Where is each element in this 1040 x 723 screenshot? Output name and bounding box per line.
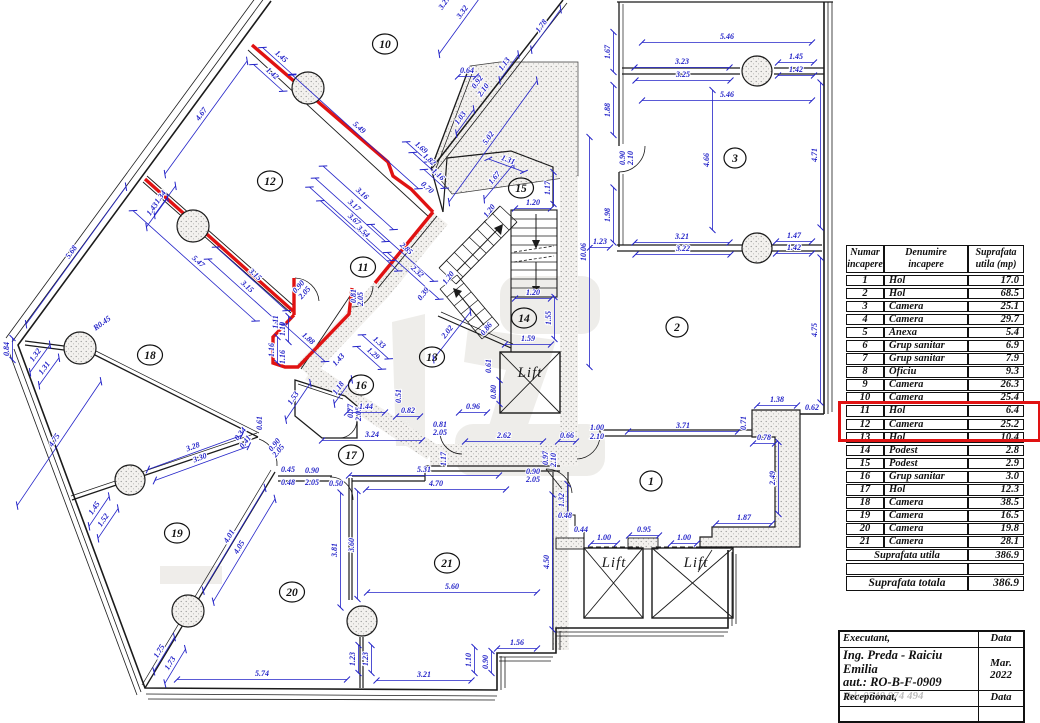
table-row-1: 1Hol17.0 (846, 275, 1024, 287)
svg-text:2.10: 2.10 (626, 151, 635, 166)
dimension-label: 3.81 (330, 490, 344, 611)
svg-text:4.71: 4.71 (810, 148, 819, 163)
svg-text:3.71: 3.71 (675, 421, 690, 430)
dimension-label: 1.75 (143, 629, 178, 675)
table-cell: 16.5 (968, 510, 1024, 522)
table-row-7: 7Grup sanitar7.9 (846, 353, 1024, 365)
svg-text:3: 3 (731, 153, 738, 165)
svg-text:1.17: 1.17 (543, 180, 552, 195)
svg-text:0.66: 0.66 (560, 431, 574, 440)
dimension-label: 1.88 (603, 82, 617, 138)
dimension-label: 0.95 (626, 525, 662, 539)
svg-text:0.44: 0.44 (574, 525, 588, 534)
dimension-label: R0.45 (91, 314, 113, 333)
table-cell: 6 (846, 340, 884, 352)
svg-text:2.05: 2.05 (525, 475, 540, 484)
header-suprafata: Suprafatautila (mp) (968, 245, 1024, 273)
room-label-10: 10 (373, 34, 398, 54)
svg-text:0.48: 0.48 (281, 478, 295, 487)
lift-label: Lift (683, 555, 709, 571)
total-row: Suprafata totala 386.9 (846, 576, 1024, 591)
dimension-label: 1.16 (278, 350, 287, 364)
room-label-17: 17 (339, 445, 364, 465)
table-cell: 2.9 (968, 458, 1024, 470)
dimension-label: 1.00 (590, 423, 604, 432)
svg-text:5.74: 5.74 (255, 669, 269, 678)
title-block: Executant, Data Ing. Preda - Raiciu Emil… (838, 630, 1025, 723)
dimension-label: 2.10 (626, 151, 635, 166)
table-cell: 5.4 (968, 327, 1024, 339)
svg-text:1.00: 1.00 (677, 533, 691, 542)
table-cell: 4 (846, 314, 884, 326)
svg-text:1.67: 1.67 (603, 44, 612, 59)
table-cell: Camera (884, 536, 968, 548)
dimension-label: 1.45 (775, 52, 817, 66)
room-label-2: 2 (666, 317, 688, 337)
svg-text:3.22: 3.22 (675, 244, 690, 253)
svg-text:3.21: 3.21 (416, 670, 431, 679)
table-cell: Grup sanitar (884, 353, 968, 365)
svg-text:11: 11 (358, 262, 369, 274)
svg-text:1.16: 1.16 (278, 350, 287, 364)
svg-text:R0.45: R0.45 (91, 314, 113, 333)
svg-text:1: 1 (648, 476, 654, 488)
svg-text:5.68: 5.68 (63, 244, 79, 261)
svg-text:1.88: 1.88 (300, 330, 316, 346)
svg-text:21: 21 (440, 558, 453, 570)
svg-text:1.20: 1.20 (481, 203, 497, 220)
table-row-19: 19Camera16.5 (846, 510, 1024, 522)
svg-text:1.20: 1.20 (526, 198, 540, 207)
dimension-label: 5.46 (639, 90, 815, 104)
sum-utila-label: Suprafata utila (846, 549, 968, 561)
svg-text:4.67: 4.67 (193, 105, 210, 123)
dimension-label: 5.60 (364, 582, 540, 596)
table-row-18: 18Camera38.5 (846, 497, 1024, 509)
area-table-header: Numarincapere Denumireincapere Suprafata… (846, 245, 1024, 273)
lift-label: Lift (601, 555, 627, 571)
table-cell: Oficiu (884, 366, 968, 378)
room-label-1: 1 (640, 471, 662, 491)
svg-text:1.56: 1.56 (510, 638, 524, 647)
svg-text:1.45: 1.45 (789, 52, 803, 61)
dimension-label: 2.05 (525, 475, 540, 484)
dimension-label: 3.67 (305, 177, 400, 265)
svg-text:1.45: 1.45 (273, 48, 289, 64)
svg-text:15: 15 (515, 183, 527, 195)
svg-text:1.44: 1.44 (359, 402, 373, 411)
svg-text:3.28: 3.28 (184, 440, 201, 454)
empty-cell-left (846, 563, 968, 575)
dimension-label: 3.17 (311, 168, 395, 246)
table-cell: Anexa (884, 327, 968, 339)
svg-text:1.87: 1.87 (737, 513, 752, 522)
svg-text:20: 20 (285, 587, 298, 599)
dimension-label: 5.68 (16, 178, 130, 328)
dimension-label: 1.42 (775, 65, 817, 79)
table-cell: 8 (846, 366, 884, 378)
empty-row (846, 563, 1024, 575)
dimension-label: 3.27 (436, 0, 453, 12)
table-cell: Camera (884, 497, 968, 509)
table-cell: Hol (884, 288, 968, 300)
dimension-label: 1.17 (439, 451, 448, 466)
table-cell: Hol (884, 275, 968, 287)
table-cell: 3 (846, 301, 884, 313)
table-row-16: 16Grup sanitar3.0 (846, 471, 1024, 483)
sum-utila-row: Suprafata utila 386.9 (846, 549, 1024, 561)
svg-text:2.62: 2.62 (496, 431, 511, 440)
data-label-top: Data (979, 632, 1023, 647)
dimension-label: 4.71 (810, 80, 824, 231)
svg-text:12: 12 (264, 176, 276, 188)
table-cell: 16 (846, 471, 884, 483)
svg-text:1.20: 1.20 (440, 270, 456, 287)
svg-text:1.32: 1.32 (557, 493, 566, 507)
table-cell: 21 (846, 536, 884, 548)
receptionat-empty (840, 707, 979, 721)
svg-text:0.78: 0.78 (757, 433, 771, 442)
dimension-label: 3.25 (633, 70, 734, 84)
svg-text:4.70: 4.70 (428, 479, 443, 488)
table-cell: Camera (884, 301, 968, 313)
dimension-label: 4.66 (702, 87, 716, 233)
table-cell: 9.3 (968, 366, 1024, 378)
table-row-21: 21Camera28.1 (846, 536, 1024, 548)
svg-text:16: 16 (355, 380, 367, 392)
svg-text:4.66: 4.66 (702, 153, 711, 168)
svg-text:3.15: 3.15 (246, 266, 263, 283)
table-cell: 26.3 (968, 379, 1024, 391)
table-cell: Camera (884, 523, 968, 535)
svg-text:3.27: 3.27 (436, 0, 453, 12)
svg-text:2: 2 (673, 322, 680, 334)
table-cell: 7 (846, 353, 884, 365)
table-cell: Hol (884, 484, 968, 496)
table-row-6: 6Grup sanitar6.9 (846, 340, 1024, 352)
table-cell: 18 (846, 497, 884, 509)
svg-text:3.60: 3.60 (347, 538, 356, 553)
room-label-12: 12 (258, 171, 283, 191)
svg-text:2.10: 2.10 (549, 453, 558, 468)
dimension-label: 1.10 (464, 644, 478, 676)
dimension-label: 0.48 (558, 511, 572, 520)
svg-text:1.42: 1.42 (789, 65, 803, 74)
svg-text:0.64: 0.64 (460, 66, 474, 75)
table-cell: Podest (884, 458, 968, 470)
svg-text:1.59: 1.59 (521, 334, 535, 343)
table-cell: 2 (846, 288, 884, 300)
table-cell: 20 (846, 523, 884, 535)
svg-text:3.25: 3.25 (675, 70, 690, 79)
empty-cell-right (968, 563, 1024, 575)
svg-text:4.50: 4.50 (542, 555, 551, 570)
svg-text:1.47: 1.47 (787, 231, 802, 240)
room-label-19: 19 (165, 523, 190, 543)
sum-utila-value: 386.9 (968, 549, 1024, 561)
table-cell: Camera (884, 379, 968, 391)
dimension-label: 1.56 (494, 638, 540, 652)
dimension-label: 2.05 (356, 292, 365, 307)
highlighted-room-walls (145, 45, 433, 367)
table-row-14: 14Podest2.8 (846, 445, 1024, 457)
svg-text:0.61: 0.61 (484, 359, 493, 373)
svg-text:1.17: 1.17 (439, 451, 448, 466)
table-row-15: 15Podest2.9 (846, 458, 1024, 470)
svg-text:5.46: 5.46 (720, 32, 734, 41)
svg-text:5.60: 5.60 (445, 582, 459, 591)
table-cell: 15 (846, 458, 884, 470)
svg-text:0.50: 0.50 (329, 479, 343, 488)
svg-text:0.84: 0.84 (2, 342, 11, 356)
svg-text:1.98: 1.98 (603, 208, 612, 222)
svg-text:3.16: 3.16 (353, 185, 370, 202)
date-month: Mar. (982, 657, 1020, 669)
svg-text:1.23: 1.23 (348, 652, 357, 666)
svg-text:3.81: 3.81 (330, 543, 339, 558)
data-empty (979, 707, 1023, 721)
dimension-label: 0.61 (484, 359, 493, 373)
dimension-label: 0.48 (281, 478, 295, 487)
svg-text:1.00: 1.00 (597, 533, 611, 542)
executant-name: Ing. Preda - Raiciu Emilia (843, 649, 975, 676)
table-cell: 38.5 (968, 497, 1024, 509)
svg-text:13: 13 (426, 352, 438, 364)
svg-text:10.06: 10.06 (579, 243, 588, 261)
svg-text:3.32: 3.32 (454, 4, 470, 21)
svg-text:1.55: 1.55 (544, 311, 553, 325)
svg-text:14: 14 (518, 313, 530, 325)
svg-text:0.51: 0.51 (394, 389, 403, 403)
svg-text:0.96: 0.96 (466, 402, 480, 411)
svg-text:4.01: 4.01 (221, 528, 236, 545)
dimension-label: 0.62 (805, 403, 819, 412)
svg-text:3.21: 3.21 (674, 232, 689, 241)
table-row-17: 17Hol12.3 (846, 484, 1024, 496)
svg-text:1.00: 1.00 (590, 423, 604, 432)
svg-text:1.32: 1.32 (27, 347, 43, 364)
table-row-3: 3Camera25.1 (846, 301, 1024, 313)
svg-text:0.45: 0.45 (281, 465, 295, 474)
lift-label: Lift (517, 365, 543, 381)
table-row-5: 5Anexa5.4 (846, 327, 1024, 339)
svg-text:1.20: 1.20 (526, 288, 540, 297)
dimension-label: 1.23 (587, 237, 613, 251)
svg-text:2.02: 2.02 (439, 324, 455, 341)
svg-text:1.31: 1.31 (36, 360, 52, 377)
dimension-label: 1.67 (603, 29, 617, 75)
date-year: 2022 (982, 669, 1020, 681)
svg-text:3.24: 3.24 (364, 430, 379, 439)
svg-text:0.82: 0.82 (401, 406, 415, 415)
svg-text:5.46: 5.46 (720, 90, 734, 99)
table-cell: Camera (884, 510, 968, 522)
dimension-label: 1.20 (481, 203, 497, 220)
table-cell: Podest (884, 445, 968, 457)
dimension-label: 2.05 (304, 478, 319, 487)
dimension-label: 0.90 (305, 466, 319, 475)
svg-text:2.05: 2.05 (356, 292, 365, 307)
receptionat-label: Receptionat, (840, 691, 979, 706)
room-label-20: 20 (280, 582, 305, 602)
svg-text:0.62: 0.62 (805, 403, 819, 412)
svg-text:2.10: 2.10 (589, 432, 604, 441)
svg-text:0.95: 0.95 (637, 525, 651, 534)
svg-text:1.23: 1.23 (361, 652, 370, 666)
table-cell: 1 (846, 275, 884, 287)
dimension-label: 0.44 (574, 525, 588, 534)
svg-text:0.39: 0.39 (415, 286, 431, 303)
table-row-20: 20Camera19.8 (846, 523, 1024, 535)
table-cell: 7.9 (968, 353, 1024, 365)
svg-text:0.90: 0.90 (305, 466, 319, 475)
svg-text:0.48: 0.48 (558, 511, 572, 520)
dimension-label: 0.39 (415, 286, 431, 303)
svg-text:3.23: 3.23 (674, 57, 689, 66)
dimension-label: 0.50 (329, 479, 343, 488)
table-cell: 5 (846, 327, 884, 339)
dimension-label: 1.00 (668, 533, 700, 547)
svg-text:0.80: 0.80 (489, 385, 498, 399)
svg-text:1.52: 1.52 (95, 512, 110, 529)
executant-authorization: aut.: RO-B-F-0909 (843, 676, 975, 690)
svg-text:1.73: 1.73 (163, 655, 178, 672)
total-value: 386.9 (968, 576, 1024, 591)
data-label-bottom: Data (979, 691, 1023, 706)
table-cell: 6.9 (968, 340, 1024, 352)
room-label-18: 18 (138, 345, 163, 365)
room-label-11: 11 (351, 257, 376, 277)
executant-info: Ing. Preda - Raiciu Emilia aut.: RO-B-F-… (840, 648, 979, 690)
table-cell: 28.1 (968, 536, 1024, 548)
dimension-label: 10.06 (579, 134, 593, 370)
table-cell: 9 (846, 379, 884, 391)
dimension-label: 1.38 (754, 395, 800, 409)
svg-text:1.42: 1.42 (787, 243, 801, 252)
table-cell: Camera (884, 314, 968, 326)
svg-text:18: 18 (144, 350, 156, 362)
dimension-label: 3.21 (374, 670, 475, 684)
svg-text:0.90: 0.90 (481, 655, 490, 669)
table-cell: 2.8 (968, 445, 1024, 457)
svg-text:17: 17 (345, 450, 358, 462)
table-cell: 17 (846, 484, 884, 496)
svg-text:2.49: 2.49 (768, 471, 777, 486)
floor-plan-page: { "colors": { "wall": "#1b1b1b", "dimens… (0, 0, 1040, 720)
svg-text:4.75: 4.75 (810, 323, 819, 338)
dimension-label: 0.84 (2, 335, 16, 363)
table-cell: 12.3 (968, 484, 1024, 496)
table-cell: 68.5 (968, 288, 1024, 300)
dimension-label: 0.96 (456, 402, 490, 416)
dimension-label: 2.05 (432, 428, 447, 437)
dimension-label: 0.45 (281, 465, 295, 474)
svg-text:1.88: 1.88 (603, 103, 612, 117)
room-label-3: 3 (724, 148, 746, 168)
dimension-label: 0.71 (739, 416, 748, 430)
svg-text:1.23: 1.23 (593, 237, 607, 246)
table-cell: 3.0 (968, 471, 1024, 483)
executant-label: Executant, (840, 632, 979, 647)
svg-text:10: 10 (379, 39, 391, 51)
dimension-label: 2.10 (589, 432, 604, 441)
total-label: Suprafata totala (846, 576, 968, 591)
svg-text:2.05: 2.05 (304, 478, 319, 487)
table-cell: 19 (846, 510, 884, 522)
room-label-16: 16 (349, 375, 374, 395)
dimension-label: 5.74 (174, 669, 350, 683)
highlight-box-rows-11-12 (838, 401, 1040, 442)
dimension-label: 4.75 (810, 255, 824, 406)
header-denumire: Denumireincapere (884, 245, 968, 273)
dimension-label: 1.20 (440, 270, 456, 287)
dimension-label: 2.10 (549, 453, 558, 468)
dimension-label: 0.61 (255, 416, 264, 430)
dimension-label: 1.87 (713, 513, 775, 527)
table-cell: 17.0 (968, 275, 1024, 287)
dimension-label: 1.00 (588, 533, 620, 547)
svg-text:5.31: 5.31 (417, 465, 431, 474)
table-row-2: 2Hol68.5 (846, 288, 1024, 300)
table-cell: 14 (846, 445, 884, 457)
dimension-label: 3.71 (625, 421, 741, 435)
svg-text:1.38: 1.38 (770, 395, 784, 404)
date-cell: Mar. 2022 (979, 648, 1023, 690)
table-cell: 25.1 (968, 301, 1024, 313)
svg-text:5.47: 5.47 (190, 253, 207, 270)
table-row-9: 9Camera26.3 (846, 379, 1024, 391)
header-numar: Numarincapere (846, 245, 884, 273)
svg-text:1.16: 1.16 (267, 343, 276, 357)
table-cell: Grup sanitar (884, 471, 968, 483)
svg-text:19: 19 (171, 528, 183, 540)
table-row-4: 4Camera29.7 (846, 314, 1024, 326)
dimension-label: 0.90 (481, 648, 495, 676)
table-cell: Grup sanitar (884, 340, 968, 352)
svg-text:3.17: 3.17 (345, 197, 363, 214)
svg-text:1.10: 1.10 (464, 653, 473, 667)
svg-text:0.71: 0.71 (739, 416, 748, 430)
svg-text:0.70: 0.70 (419, 179, 435, 195)
table-row-8: 8Oficiu9.3 (846, 366, 1024, 378)
svg-text:4.75: 4.75 (46, 432, 62, 449)
dimension-label: 0.51 (394, 389, 403, 403)
svg-text:2.05: 2.05 (432, 428, 447, 437)
dimension-label: 4.05 (203, 491, 279, 606)
dimension-label: 0.70 (419, 179, 435, 195)
svg-text:1.45: 1.45 (86, 500, 101, 517)
room-label-21: 21 (435, 553, 460, 573)
svg-text:0.61: 0.61 (255, 416, 264, 430)
dimension-label: 5.46 (639, 32, 815, 46)
table-cell: 19.8 (968, 523, 1024, 535)
dimension-label: 3.30 (148, 435, 252, 484)
table-cell: 29.7 (968, 314, 1024, 326)
